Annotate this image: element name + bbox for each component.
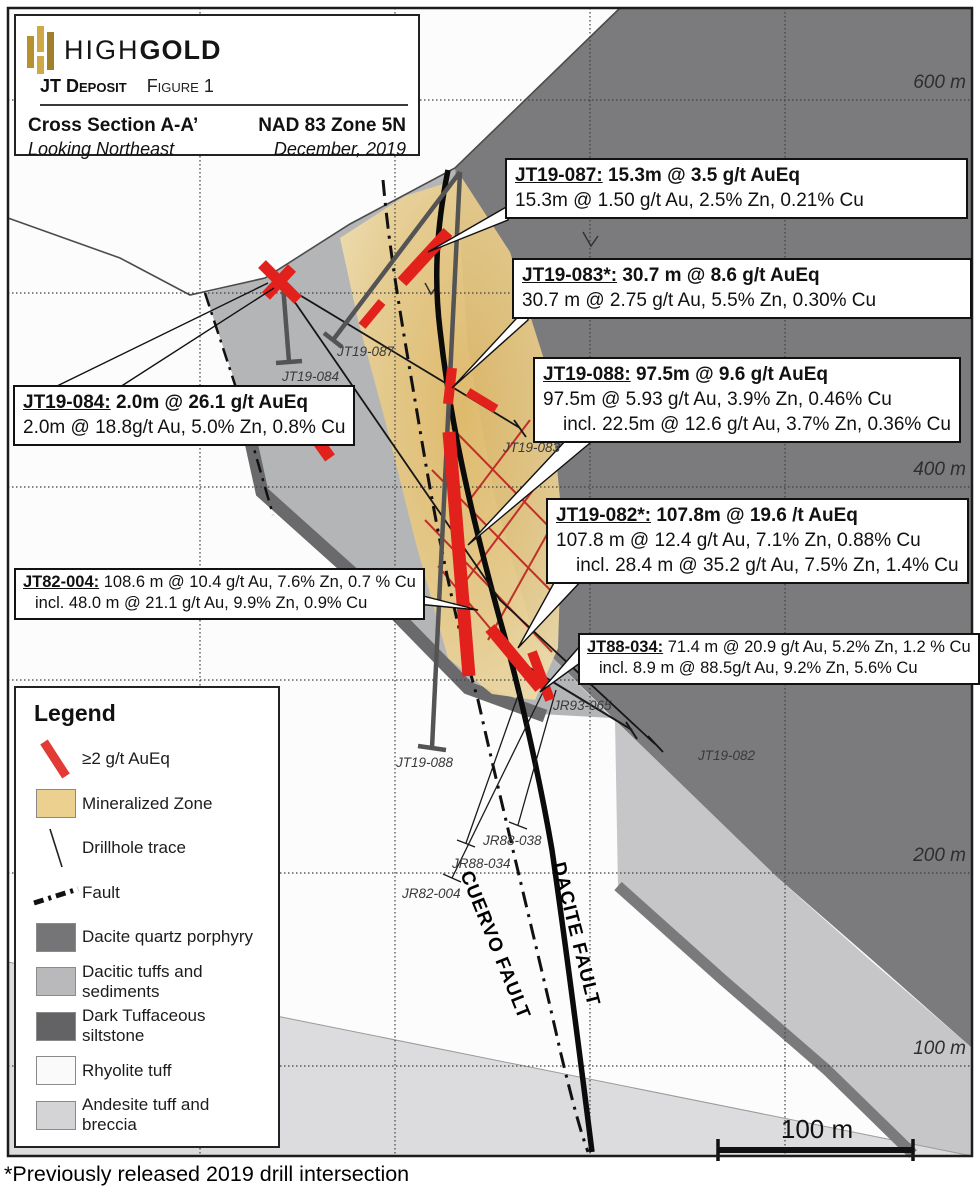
hole-id: JT19-087: [515, 165, 603, 186]
hole-id: JT82-004: [23, 573, 99, 591]
hole-id: JT19-088: [543, 364, 631, 385]
footnote: *Previously released 2019 drill intersec… [4, 1162, 409, 1187]
legend-item-siltstone: Dark Tuffaceous siltstone [30, 1004, 264, 1049]
assay-line: 107.8 m @ 12.4 g/t Au, 7.1% Zn, 0.88% Cu [556, 528, 959, 553]
mineralized-swatch-icon [36, 789, 76, 818]
figure-number: Figure 1 [147, 76, 214, 97]
legend-item-rhyolite: Rhyolite tuff [30, 1049, 264, 1094]
elevation-label-200: 200 m [876, 845, 966, 867]
hole-id: JT88-034: [587, 638, 663, 656]
cross-section-figure: HIGHGOLD JT Deposit Figure 1 Cross Secti… [0, 0, 980, 1199]
elevation-label-100: 100 m [876, 1038, 966, 1060]
legend-item-fault: Fault [30, 871, 264, 916]
drill-label-jr82-004: JR82-004 [402, 886, 461, 901]
drill-label-jr93-065: JR93-065 [553, 698, 612, 713]
drill-label-jr88-034: JR88-034 [452, 856, 511, 871]
porphyry-swatch-icon [36, 923, 76, 952]
callout-jt82-004: JT82-004: 108.6 m @ 10.4 g/t Au, 7.6% Zn… [14, 568, 425, 620]
hole-id: JT19-082*: [556, 505, 651, 526]
assay-line-incl: incl. 8.9 m @ 88.5g/t Au, 9.2% Zn, 5.6% … [587, 658, 971, 679]
drillhole-trace-icon [30, 827, 82, 869]
highgold-logo-icon [26, 24, 56, 76]
elevation-label-600: 600 m [876, 72, 966, 94]
datum-label: NAD 83 Zone 5N [258, 115, 406, 137]
callout-jt88-034: JT88-034: 71.4 m @ 20.9 g/t Au, 5.2% Zn,… [578, 633, 980, 685]
assay-line: 97.5m @ 5.93 g/t Au, 3.9% Zn, 0.46% Cu [543, 387, 951, 412]
fault-line-icon [30, 872, 82, 914]
legend-item-andesite: Andesite tuff and breccia [30, 1093, 264, 1138]
legend-item-intercept: ≥2 g/t AuEq [30, 737, 264, 782]
legend: Legend ≥2 g/t AuEq Mineralized Zone Dril… [14, 686, 280, 1148]
callout-jt19-083: JT19-083*: 30.7 m @ 8.6 g/t AuEq 30.7 m … [512, 258, 972, 319]
brand-high: HIGH [64, 35, 140, 65]
callout-jt19-087: JT19-087: 15.3m @ 3.5 g/t AuEq 15.3m @ 1… [505, 158, 968, 219]
scale-bar-label: 100 m [752, 1114, 882, 1145]
assay-line-incl: incl. 48.0 m @ 21.1 g/t Au, 9.9% Zn, 0.9… [23, 593, 416, 614]
callout-jt19-088: JT19-088: 97.5m @ 9.6 g/t AuEq 97.5m @ 5… [533, 357, 961, 443]
dacitic-tuffs-swatch-icon [36, 967, 76, 996]
hole-id: JT19-083*: [522, 265, 617, 286]
callout-jt19-082: JT19-082*: 107.8m @ 19.6 /t AuEq 107.8 m… [546, 498, 969, 584]
siltstone-swatch-icon [36, 1012, 76, 1041]
assay-line: 30.7 m @ 2.75 g/t Au, 5.5% Zn, 0.30% Cu [522, 288, 962, 313]
hole-id: JT19-084: [23, 392, 111, 413]
assay-line-incl: incl. 22.5m @ 12.6 g/t Au, 3.7% Zn, 0.36… [543, 412, 951, 437]
elevation-label-400: 400 m [876, 459, 966, 481]
brand-gold: GOLD [140, 35, 222, 65]
assay-line-incl: incl. 28.4 m @ 35.2 g/t Au, 7.5% Zn, 1.4… [556, 553, 959, 578]
date-label: December, 2019 [274, 139, 406, 160]
red-intercept-icon [30, 738, 82, 780]
view-direction-label: Looking Northeast [28, 139, 174, 160]
legend-item-dacitic-tuffs: Dacitic tuffs and sediments [30, 960, 264, 1005]
brand-name: HIGHGOLD [64, 35, 222, 66]
deposit-name: JT Deposit [40, 76, 127, 97]
drill-label-jt19-087: JT19-087 [337, 344, 394, 359]
rhyolite-swatch-icon [36, 1056, 76, 1085]
andesite-swatch-icon [36, 1101, 76, 1130]
title-box: HIGHGOLD JT Deposit Figure 1 Cross Secti… [14, 14, 420, 156]
assay-line: 2.0m @ 18.8g/t Au, 5.0% Zn, 0.8% Cu [23, 415, 345, 440]
drill-label-jt19-082: JT19-082 [698, 748, 755, 763]
legend-item-drillhole: Drillhole trace [30, 826, 264, 871]
callout-jt19-084: JT19-084: 2.0m @ 26.1 g/t AuEq 2.0m @ 18… [13, 385, 355, 446]
legend-item-mineralized: Mineralized Zone [30, 782, 264, 827]
drill-label-jt19-084: JT19-084 [282, 369, 339, 384]
drill-label-jr88-038: JR88-038 [483, 833, 542, 848]
assay-line: 15.3m @ 1.50 g/t Au, 2.5% Zn, 0.21% Cu [515, 188, 958, 213]
drill-label-jt19-088: JT19-088 [396, 755, 453, 770]
legend-title: Legend [34, 700, 264, 727]
legend-item-porphyry: Dacite quartz porphyry [30, 915, 264, 960]
section-label: Cross Section A-A’ [28, 115, 198, 137]
